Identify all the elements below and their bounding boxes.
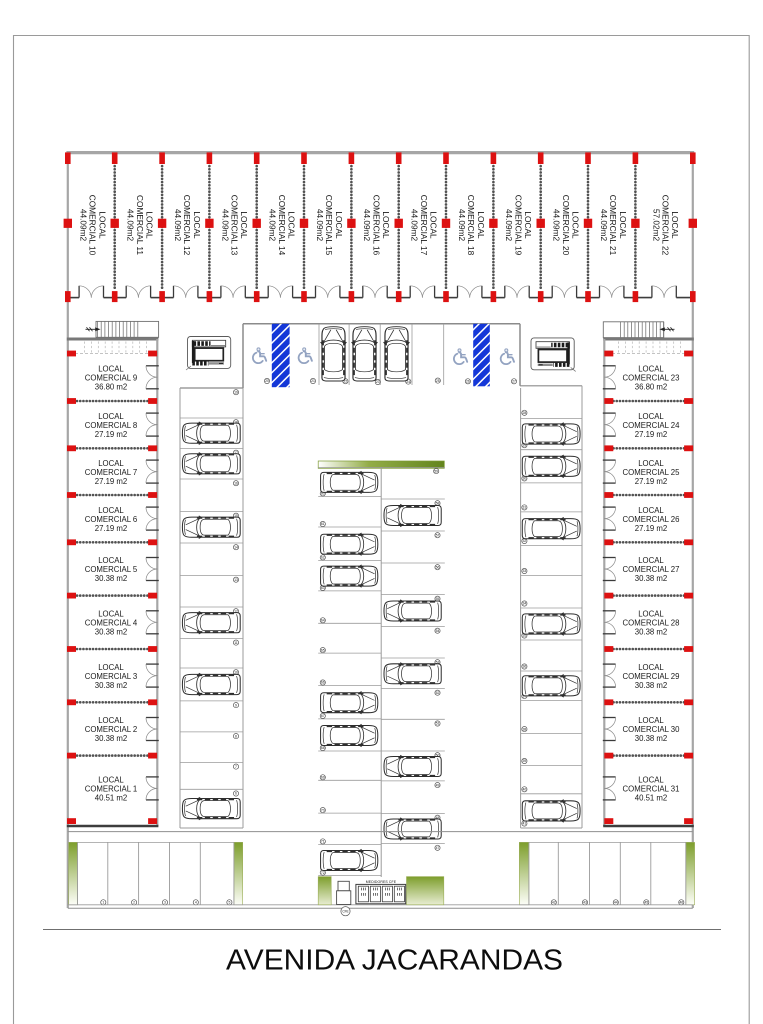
svg-text:44.09m2: 44.09m2 bbox=[552, 209, 562, 242]
svg-text:COMERCIAL 8: COMERCIAL 8 bbox=[85, 421, 138, 430]
svg-text:LOCAL: LOCAL bbox=[98, 609, 124, 618]
svg-text:44.09m2: 44.09m2 bbox=[362, 209, 372, 242]
svg-text:44.09m2: 44.09m2 bbox=[79, 209, 89, 242]
svg-text:LOCAL: LOCAL bbox=[638, 364, 664, 373]
svg-text:COMERCIAL 31: COMERCIAL 31 bbox=[623, 785, 680, 794]
svg-text:40: 40 bbox=[523, 788, 527, 792]
svg-text:71: 71 bbox=[321, 840, 325, 844]
svg-text:44.09m2: 44.09m2 bbox=[173, 209, 183, 242]
svg-text:30.38 m2: 30.38 m2 bbox=[635, 628, 668, 637]
svg-text:LOCAL: LOCAL bbox=[98, 459, 124, 468]
svg-text:LOCAL: LOCAL bbox=[381, 211, 391, 239]
svg-text:44.09m2: 44.09m2 bbox=[315, 209, 325, 242]
svg-text:27.19 m2: 27.19 m2 bbox=[95, 524, 128, 533]
svg-text:COMERCIAL 7: COMERCIAL 7 bbox=[85, 468, 138, 477]
svg-text:LOCAL: LOCAL bbox=[98, 364, 124, 373]
svg-text:LOCAL: LOCAL bbox=[192, 211, 202, 239]
svg-text:1: 1 bbox=[102, 901, 104, 905]
svg-text:LOCAL: LOCAL bbox=[638, 776, 664, 785]
svg-text:AVENIDA JACARANDAS: AVENIDA JACARANDAS bbox=[226, 944, 563, 976]
svg-text:62: 62 bbox=[321, 556, 325, 560]
svg-text:COMERCIAL 9: COMERCIAL 9 bbox=[85, 373, 138, 382]
svg-text:LOCAL: LOCAL bbox=[638, 716, 664, 725]
svg-text:LOCAL: LOCAL bbox=[638, 609, 664, 618]
svg-text:30.38 m2: 30.38 m2 bbox=[95, 734, 128, 743]
svg-text:43: 43 bbox=[583, 901, 587, 905]
svg-text:69: 69 bbox=[321, 776, 325, 780]
svg-text:COMERCIAL 3: COMERCIAL 3 bbox=[85, 672, 138, 681]
svg-text:44.09m2: 44.09m2 bbox=[220, 209, 230, 242]
svg-text:LOCAL: LOCAL bbox=[287, 211, 297, 239]
svg-text:42: 42 bbox=[552, 901, 556, 905]
svg-text:8: 8 bbox=[235, 734, 237, 738]
svg-text:COMERCIAL 30: COMERCIAL 30 bbox=[623, 725, 681, 734]
svg-text:LOCAL: LOCAL bbox=[98, 506, 124, 515]
svg-text:49: 49 bbox=[436, 783, 440, 787]
svg-text:LOCAL: LOCAL bbox=[98, 663, 124, 672]
svg-text:LOCAL: LOCAL bbox=[334, 211, 344, 239]
svg-text:54: 54 bbox=[436, 629, 440, 633]
svg-text:LOCAL: LOCAL bbox=[476, 211, 486, 239]
svg-text:32: 32 bbox=[523, 539, 527, 543]
svg-text:44.09m2: 44.09m2 bbox=[457, 209, 467, 242]
svg-text:44.09m2: 44.09m2 bbox=[126, 209, 136, 242]
svg-text:28: 28 bbox=[523, 411, 527, 415]
svg-text:41: 41 bbox=[523, 822, 527, 826]
svg-text:44.09m2: 44.09m2 bbox=[268, 209, 278, 242]
svg-text:30.38 m2: 30.38 m2 bbox=[95, 628, 128, 637]
svg-text:LOCAL: LOCAL bbox=[638, 663, 664, 672]
svg-text:72: 72 bbox=[321, 871, 325, 875]
svg-text:COMERCIAL 1: COMERCIAL 1 bbox=[85, 785, 138, 794]
svg-text:7: 7 bbox=[235, 765, 237, 769]
svg-text:57: 57 bbox=[436, 533, 440, 537]
svg-text:67: 67 bbox=[321, 714, 325, 718]
svg-text:19: 19 bbox=[234, 390, 238, 394]
svg-text:36: 36 bbox=[523, 665, 527, 669]
svg-text:58: 58 bbox=[436, 501, 440, 505]
svg-text:39: 39 bbox=[523, 759, 527, 763]
svg-text:64: 64 bbox=[321, 619, 325, 623]
svg-text:27: 27 bbox=[512, 380, 516, 384]
svg-text:COMERCIAL 24: COMERCIAL 24 bbox=[623, 421, 681, 430]
svg-text:5: 5 bbox=[228, 901, 230, 905]
svg-text:59: 59 bbox=[434, 469, 438, 473]
svg-text:LOCAL: LOCAL bbox=[429, 211, 439, 239]
svg-text:LOCAL: LOCAL bbox=[670, 211, 680, 239]
svg-text:36.80 m2: 36.80 m2 bbox=[95, 382, 128, 391]
svg-text:40.51 m2: 40.51 m2 bbox=[635, 794, 668, 803]
svg-text:25: 25 bbox=[436, 379, 440, 383]
svg-text:63: 63 bbox=[321, 586, 325, 590]
svg-text:40.51 m2: 40.51 m2 bbox=[95, 794, 128, 803]
svg-text:51: 51 bbox=[436, 722, 440, 726]
svg-text:LOCAL: LOCAL bbox=[638, 506, 664, 515]
svg-text:10: 10 bbox=[234, 670, 238, 674]
svg-text:36.80 m2: 36.80 m2 bbox=[635, 382, 668, 391]
svg-text:3: 3 bbox=[164, 901, 166, 905]
svg-text:55: 55 bbox=[436, 597, 440, 601]
svg-text:LOCAL: LOCAL bbox=[145, 211, 155, 239]
svg-text:LOCAL: LOCAL bbox=[97, 211, 107, 239]
svg-text:57.02m2: 57.02m2 bbox=[651, 209, 661, 242]
svg-text:COMERCIAL 4: COMERCIAL 4 bbox=[85, 619, 138, 628]
svg-text:2: 2 bbox=[133, 901, 135, 905]
svg-text:52: 52 bbox=[436, 691, 440, 695]
svg-text:33: 33 bbox=[523, 569, 527, 573]
svg-text:46: 46 bbox=[679, 901, 683, 905]
svg-text:31: 31 bbox=[523, 506, 527, 510]
svg-text:16: 16 bbox=[234, 481, 238, 485]
svg-text:21: 21 bbox=[311, 379, 315, 383]
svg-text:44.09m2: 44.09m2 bbox=[504, 209, 514, 242]
svg-text:COMERCIAL 2: COMERCIAL 2 bbox=[85, 725, 138, 734]
svg-text:LOCAL: LOCAL bbox=[638, 459, 664, 468]
svg-text:27.19 m2: 27.19 m2 bbox=[635, 430, 668, 439]
svg-text:COMERCIAL 6: COMERCIAL 6 bbox=[85, 515, 138, 524]
svg-text:COMERCIAL 27: COMERCIAL 27 bbox=[623, 565, 680, 574]
svg-text:11: 11 bbox=[234, 641, 238, 645]
svg-text:LOCAL: LOCAL bbox=[523, 211, 533, 239]
svg-text:30.38 m2: 30.38 m2 bbox=[635, 681, 668, 690]
svg-text:9: 9 bbox=[235, 703, 237, 707]
svg-text:34: 34 bbox=[523, 602, 527, 606]
svg-text:COMERCIAL 25: COMERCIAL 25 bbox=[623, 468, 681, 477]
svg-text:30.38 m2: 30.38 m2 bbox=[635, 734, 668, 743]
svg-text:14: 14 bbox=[234, 545, 238, 549]
svg-text:COMERCIAL 5: COMERCIAL 5 bbox=[85, 565, 138, 574]
svg-text:COMERCIAL 26: COMERCIAL 26 bbox=[623, 515, 680, 524]
svg-text:4: 4 bbox=[195, 901, 197, 905]
svg-text:61: 61 bbox=[321, 522, 325, 526]
svg-text:MEDIDORES CFE: MEDIDORES CFE bbox=[366, 880, 397, 884]
svg-text:44: 44 bbox=[614, 901, 618, 905]
svg-text:20: 20 bbox=[265, 379, 269, 383]
svg-text:30.38 m2: 30.38 m2 bbox=[95, 574, 128, 583]
svg-text:47: 47 bbox=[436, 846, 440, 850]
svg-text:30: 30 bbox=[523, 477, 527, 481]
svg-text:LOCAL: LOCAL bbox=[98, 716, 124, 725]
svg-text:45: 45 bbox=[644, 901, 648, 905]
svg-text:26: 26 bbox=[466, 380, 470, 384]
svg-text:LOCAL: LOCAL bbox=[98, 556, 124, 565]
svg-text:COMERCIAL 29: COMERCIAL 29 bbox=[623, 672, 680, 681]
svg-text:6: 6 bbox=[235, 792, 237, 796]
svg-text:30.38 m2: 30.38 m2 bbox=[635, 574, 668, 583]
svg-text:70: 70 bbox=[321, 808, 325, 812]
svg-text:66: 66 bbox=[321, 681, 325, 685]
svg-text:LOCAL: LOCAL bbox=[239, 211, 249, 239]
svg-text:56: 56 bbox=[436, 565, 440, 569]
svg-text:COMERCIAL 28: COMERCIAL 28 bbox=[623, 619, 680, 628]
svg-text:68: 68 bbox=[321, 746, 325, 750]
svg-text:27.19 m2: 27.19 m2 bbox=[635, 524, 668, 533]
svg-text:30.38 m2: 30.38 m2 bbox=[95, 681, 128, 690]
svg-text:65: 65 bbox=[321, 648, 325, 652]
svg-text:13: 13 bbox=[234, 578, 238, 582]
svg-text:COMERCIAL 23: COMERCIAL 23 bbox=[623, 373, 680, 382]
svg-text:27.19 m2: 27.19 m2 bbox=[95, 430, 128, 439]
svg-text:23: 23 bbox=[376, 380, 380, 384]
svg-text:27.19 m2: 27.19 m2 bbox=[95, 477, 128, 486]
svg-text:44.09m2: 44.09m2 bbox=[599, 209, 609, 242]
svg-text:LOCAL: LOCAL bbox=[618, 211, 628, 239]
svg-text:LOCAL: LOCAL bbox=[638, 556, 664, 565]
svg-text:38: 38 bbox=[523, 727, 527, 731]
svg-text:LOCAL: LOCAL bbox=[638, 412, 664, 421]
svg-text:CFE: CFE bbox=[342, 910, 348, 914]
svg-text:LOCAL: LOCAL bbox=[98, 412, 124, 421]
svg-text:LOCAL: LOCAL bbox=[98, 776, 124, 785]
svg-text:27.19 m2: 27.19 m2 bbox=[635, 477, 668, 486]
svg-text:LOCAL: LOCAL bbox=[571, 211, 581, 239]
svg-text:44.09m2: 44.09m2 bbox=[410, 209, 420, 242]
